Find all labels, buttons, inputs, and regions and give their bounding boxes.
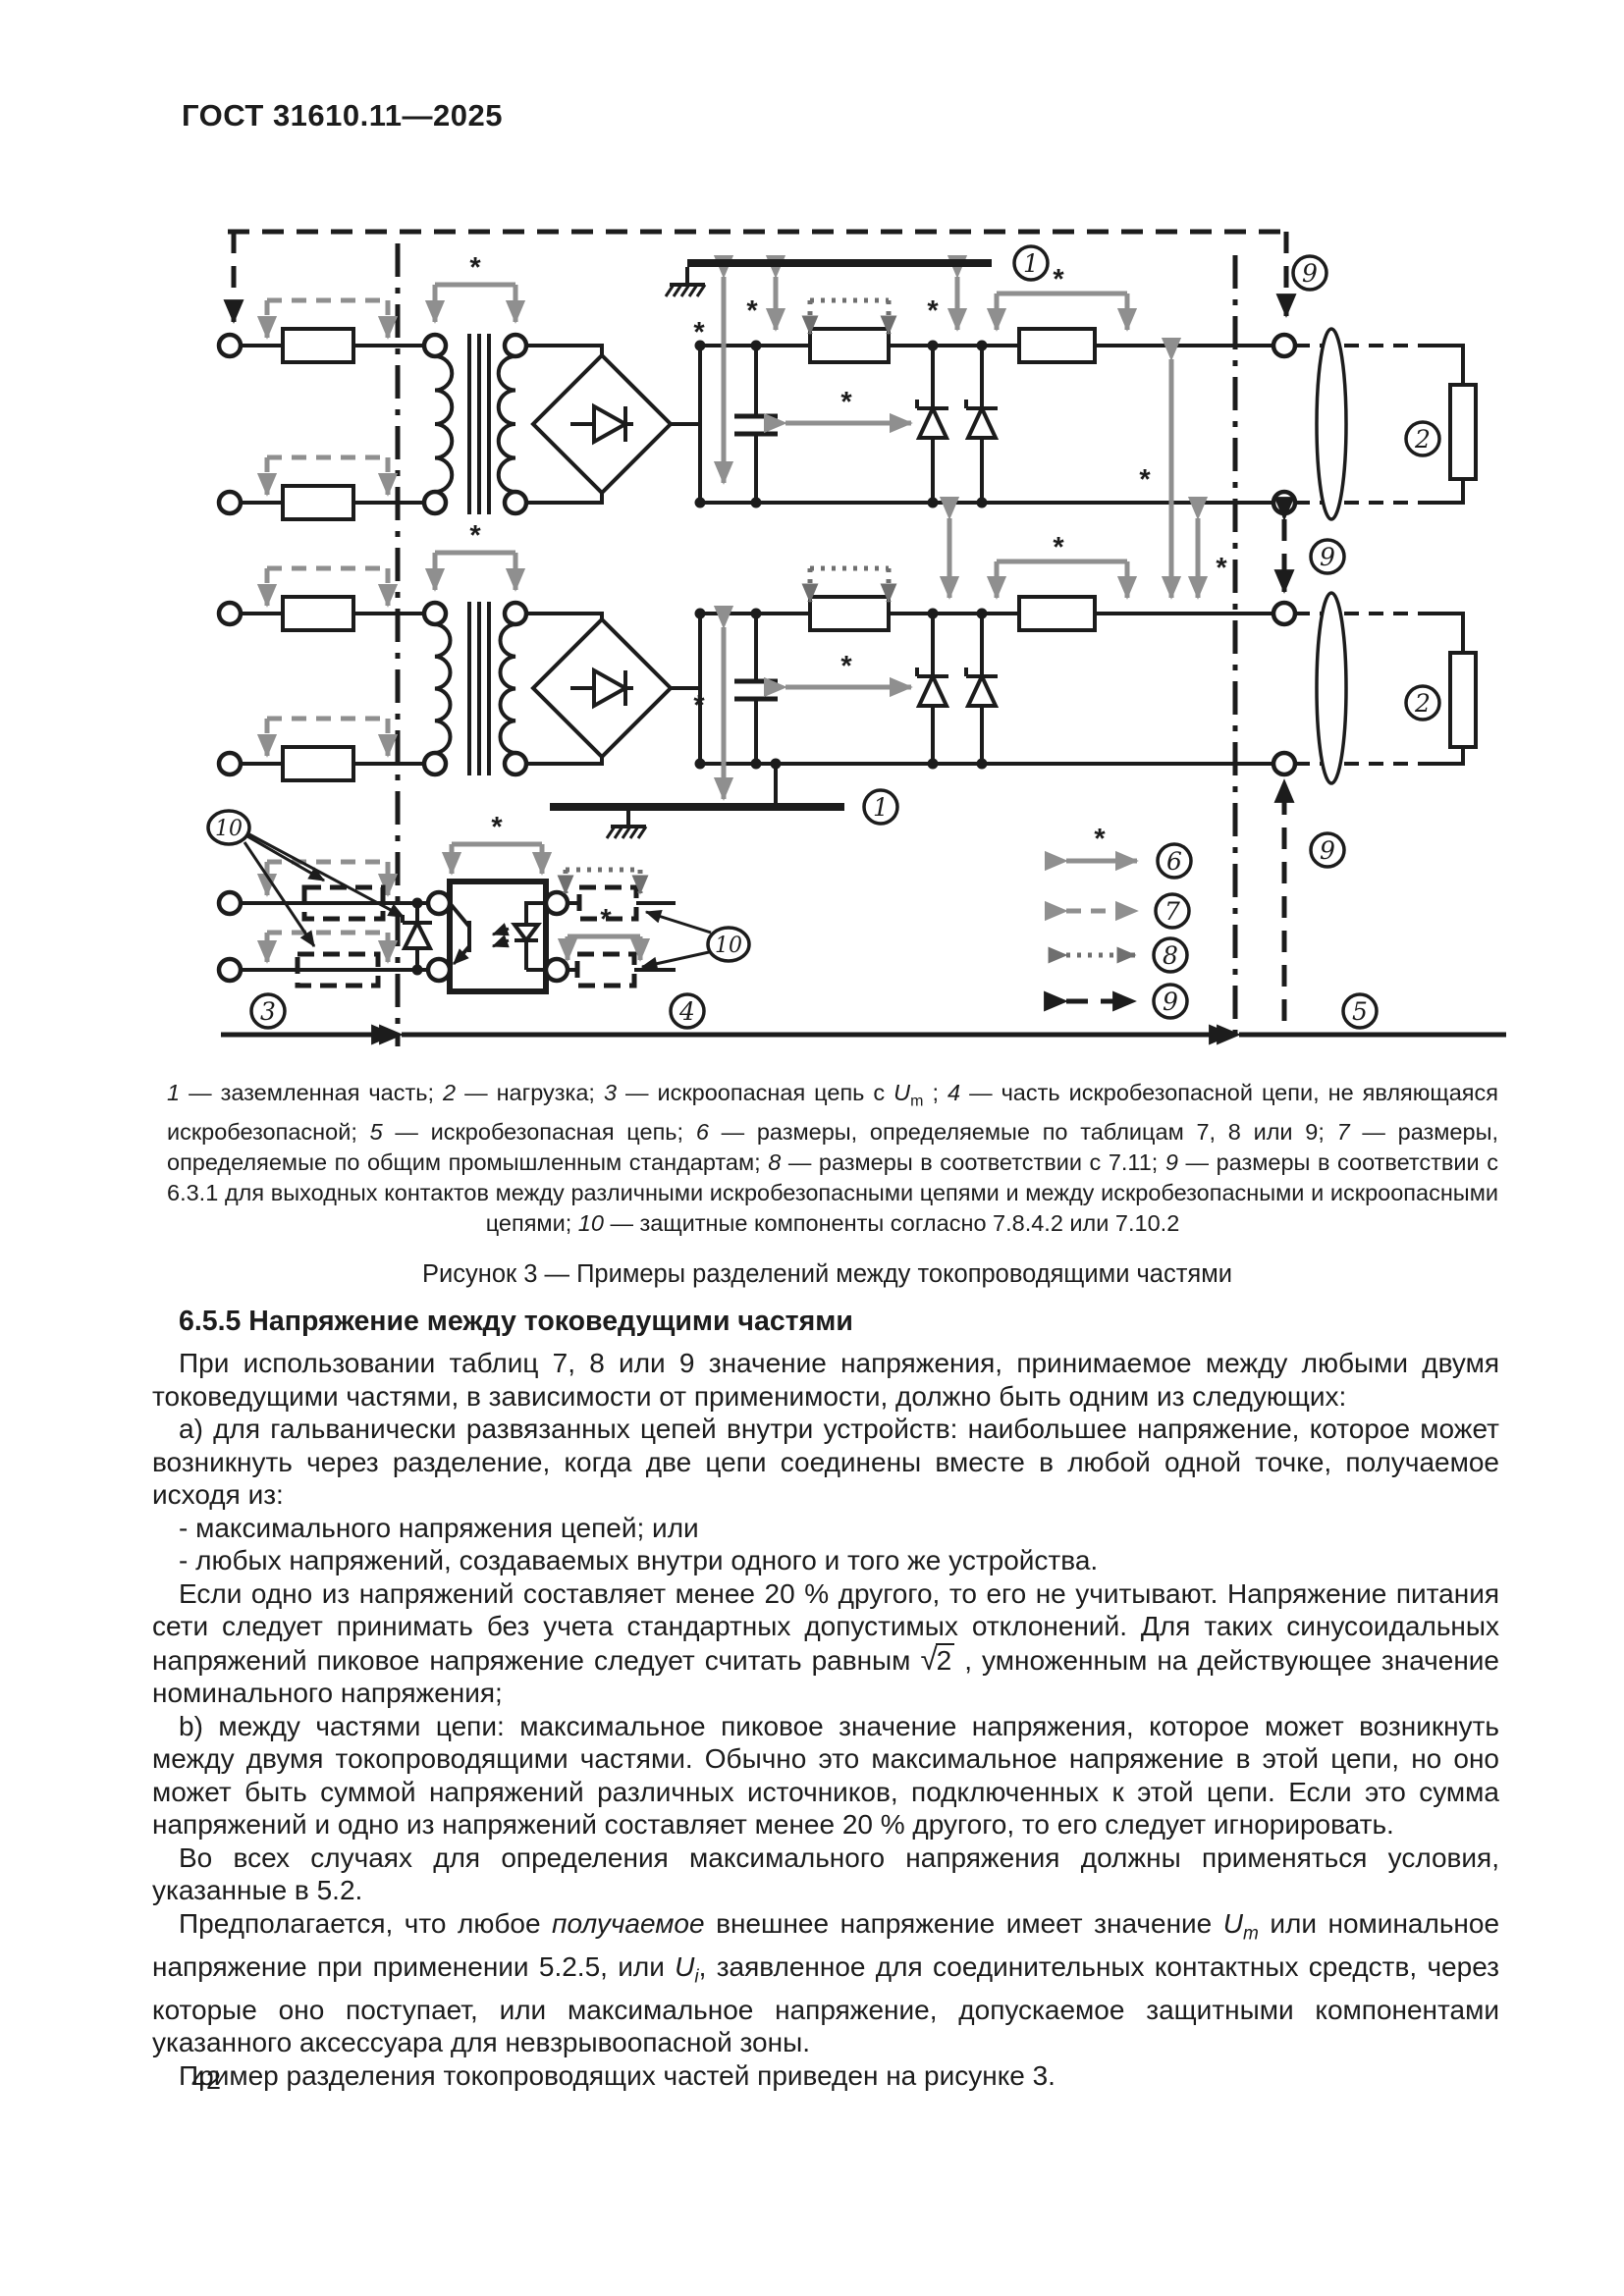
figure-caption: 1 — заземленная часть; 2 — нагрузка; 3 —… [167, 1078, 1498, 1239]
circled-label-9: 9 [1163, 988, 1178, 1016]
load-resistor [1450, 653, 1476, 747]
svg-text:*: * [491, 812, 503, 843]
cable-ellipse [1317, 593, 1346, 783]
circled-label-5: 5 [1352, 997, 1368, 1026]
cable-ellipse [1317, 329, 1346, 519]
standard-code-header: ГОСТ 31610.11—2025 [182, 98, 503, 133]
svg-text:*: * [1053, 532, 1064, 563]
bridge-rectifier [526, 346, 700, 503]
circled-label-6: 6 [1166, 847, 1182, 876]
paragraph: - любых напряжений, создаваемых внутри о… [152, 1544, 1499, 1577]
fuse [810, 597, 889, 630]
load-resistor [1450, 385, 1476, 479]
figure-3-diagram: * [147, 137, 1522, 1080]
circled-label-9: 9 [1320, 543, 1335, 571]
paragraph: Если одно из напряжений составляет менее… [152, 1577, 1499, 1710]
separation-arrow-9-between-circuits: 9 [1284, 519, 1344, 592]
section-6-5-5: 6.5.5 Напряжение между токоведущими част… [152, 1306, 1499, 2092]
paragraph: Во всех случаях для определения максимал… [152, 1842, 1499, 1907]
svg-text:*: * [693, 317, 705, 348]
protective-component-box [577, 954, 634, 986]
dimension-bracket-dotted [566, 870, 640, 893]
bridge-rectifier [526, 614, 700, 764]
svg-text:*: * [600, 904, 612, 935]
legend: * 6 7 8 9 [1066, 824, 1191, 1018]
svg-text:*: * [746, 295, 758, 327]
smoothing-capacitor [734, 609, 778, 770]
circled-label-4: 4 [678, 997, 695, 1026]
document-page: ГОСТ 31610.11—2025 [0, 0, 1624, 2296]
svg-text:*: * [1094, 824, 1106, 855]
fuse [283, 486, 353, 519]
paragraph: Предполагается, что любое получаемое вне… [152, 1907, 1499, 2059]
svg-text:*: * [927, 295, 939, 327]
paragraph: а) для гальванически развязанных цепей в… [152, 1413, 1499, 1512]
svg-text:*: * [469, 252, 481, 284]
paragraph: - максимального напряжения цепей; или [152, 1512, 1499, 1545]
paragraph: При использовании таблиц 7, 8 или 9 знач… [152, 1347, 1499, 1413]
svg-text:*: * [840, 651, 852, 682]
transformer [424, 602, 526, 775]
circled-label-9: 9 [1302, 259, 1318, 288]
power-circuit-1: * [219, 246, 1476, 598]
paragraph: Пример разделения токопроводящих частей … [152, 2059, 1499, 2093]
optocoupler [428, 881, 568, 991]
circled-label-10: 10 [715, 934, 742, 958]
smoothing-capacitor [734, 341, 778, 508]
zener-diodes [917, 341, 998, 508]
fuse [810, 329, 889, 362]
svg-text:*: * [469, 520, 481, 552]
load-circuit-1: 2 [1295, 329, 1476, 519]
svg-text:*: * [1139, 464, 1151, 496]
fuse [283, 747, 353, 780]
paragraph: b) между частями цепи: максимальное пико… [152, 1710, 1499, 1842]
circled-label-8: 8 [1163, 941, 1178, 970]
circled-label-1: 1 [1023, 249, 1039, 278]
section-heading: 6.5.5 Напряжение между токоведущими част… [152, 1306, 1499, 1338]
grounded-part-bar [666, 263, 992, 296]
page-number: 42 [191, 2065, 221, 2096]
fuse [283, 329, 353, 362]
fuse [283, 597, 353, 630]
power-circuit-2: * [219, 520, 1476, 838]
circled-label-1: 1 [873, 793, 889, 822]
dimension-arrows-gray [724, 277, 1198, 598]
svg-text:*: * [1216, 553, 1227, 584]
transformer [424, 334, 526, 514]
svg-text:*: * [1053, 264, 1064, 295]
output-resistor [1019, 329, 1095, 362]
circled-label-10: 10 [215, 817, 243, 841]
zone-dimension-lines: 3 4 5 [221, 994, 1506, 1035]
svg-text:*: * [840, 387, 852, 418]
circled-label-9: 9 [1320, 836, 1335, 865]
grounded-part-bar [550, 759, 844, 839]
load-circuit-2: 2 [1295, 593, 1476, 783]
circled-label-3: 3 [260, 997, 276, 1026]
circled-label-7: 7 [1164, 897, 1180, 926]
circled-label-2: 2 [1414, 425, 1431, 454]
separation-arrow-9-lower: 9 [1284, 780, 1344, 1021]
optocoupler-circuit: * * 10 10 [208, 811, 749, 991]
svg-text:*: * [693, 690, 705, 721]
figure-title: Рисунок 3 — Примеры разделений между ток… [152, 1260, 1502, 1289]
output-resistor [1019, 597, 1095, 630]
circled-label-2: 2 [1414, 689, 1431, 718]
zener-diodes [917, 609, 998, 770]
